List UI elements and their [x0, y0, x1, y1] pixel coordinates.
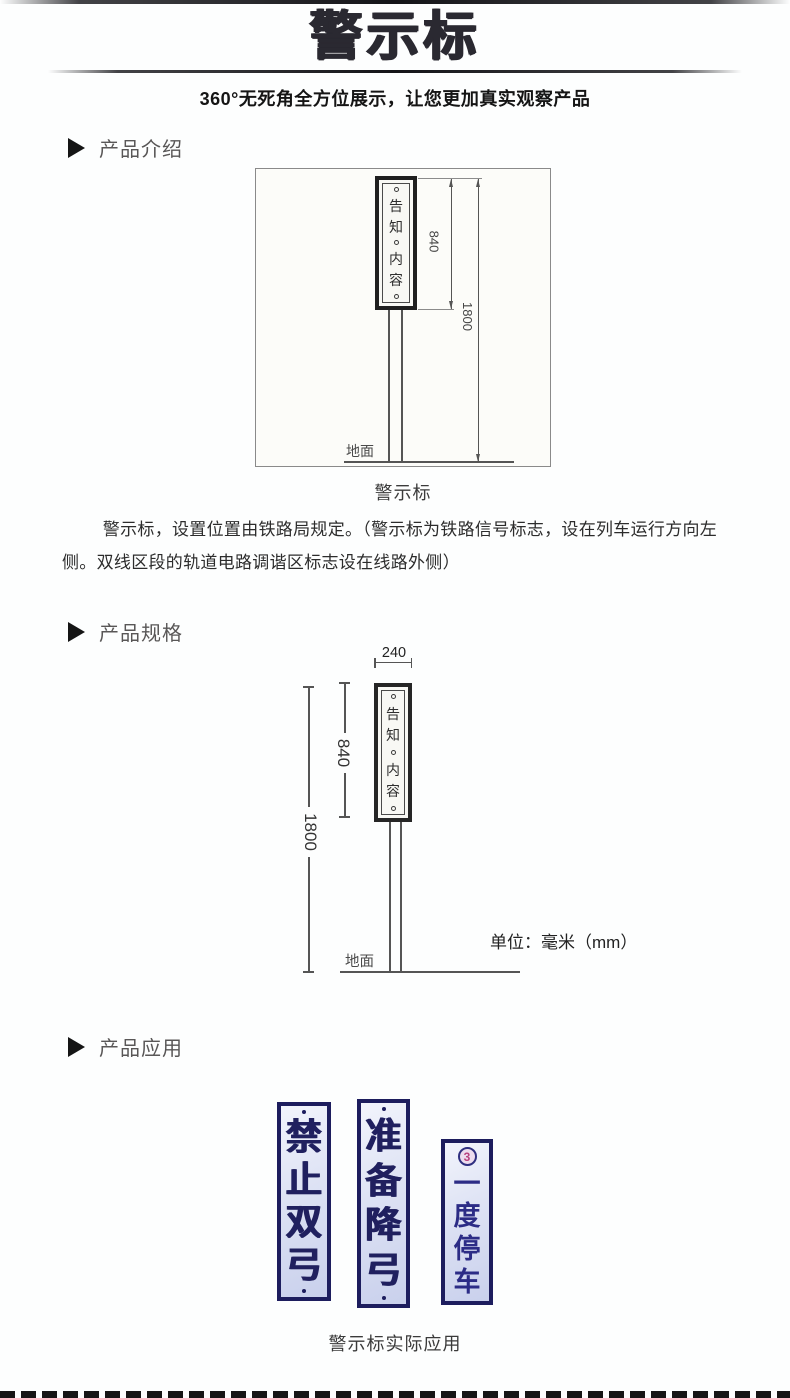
section-heading-label: 产品介绍 [99, 133, 183, 162]
section-heading-spec: 产品规格 [68, 617, 183, 646]
section-heading-application: 产品应用 [68, 1032, 183, 1061]
plate-char: 容 [386, 784, 400, 798]
drawing-sign-plate: 告 知 内 容 [374, 683, 412, 822]
plate-char: 知 [386, 728, 400, 742]
plate-char: 告 [389, 199, 403, 213]
plate-char: 告 [386, 707, 400, 721]
ground-label: 地面 [346, 441, 374, 461]
plate-char: 内 [386, 763, 400, 777]
sign-char: 度 [454, 1202, 481, 1231]
mounting-hole [391, 806, 396, 811]
plate-char: 知 [389, 220, 403, 234]
post-line [400, 822, 402, 972]
plate-char: 内 [389, 252, 403, 266]
sign-char: 准 [365, 1117, 401, 1156]
sign-char: 备 [365, 1162, 401, 1201]
page-title: 警示标 [0, 8, 790, 66]
dimension-label-840: 840 [426, 231, 441, 253]
mounting-hole [391, 750, 396, 755]
header-top-bar [0, 0, 790, 4]
sign-char: 禁 [286, 1118, 322, 1157]
drawing-sign-plate-inner: 告 知 内 容 [382, 183, 410, 303]
sign-char: 弓 [286, 1246, 322, 1285]
section-heading-label: 产品应用 [99, 1032, 183, 1061]
figure-spec-drawing: 240 告 知 内 容 地面 840 1800 单位：毫米（mm） [285, 645, 665, 990]
dimension-label-1800: 1800 [460, 302, 475, 331]
application-sign-zhunbei-jianggong: 准 备 降 弓 [357, 1099, 410, 1308]
mounting-hole [302, 1289, 306, 1293]
mounting-hole [391, 694, 396, 699]
mounting-hole [394, 240, 399, 245]
triangle-bullet-icon [68, 138, 85, 158]
sign-char: 弓 [365, 1251, 401, 1290]
drawing-sign-plate-inner: 告 知 内 容 [381, 690, 405, 815]
sign-char: 降 [365, 1206, 401, 1245]
sign-char: 双 [286, 1203, 322, 1242]
post-line [401, 310, 403, 462]
mounting-hole [382, 1296, 386, 1300]
ground-line [344, 461, 514, 463]
bottom-dashed-bar [0, 1391, 790, 1398]
mounting-hole [394, 294, 399, 299]
mounting-hole [302, 1110, 306, 1114]
page-subtitle: 360°无死角全方位展示，让您更加真实观察产品 [0, 85, 790, 111]
application-sign-yidu-tingche: 3 一 度 停 车 [441, 1139, 493, 1305]
dimension-line-1800 [478, 179, 479, 462]
mounting-hole [382, 1107, 386, 1111]
application-signs-row: 禁 止 双 弓 准 备 降 弓 3 一 度 停 车 [0, 1094, 790, 1322]
circled-3-badge: 3 [458, 1147, 477, 1166]
unit-note: 单位：毫米（mm） [490, 928, 637, 953]
section-heading-label: 产品规格 [99, 617, 183, 646]
figure1-caption: 警示标 [255, 479, 551, 505]
triangle-bullet-icon [68, 1037, 85, 1057]
dimension-line-840 [451, 179, 452, 309]
section-heading-intro: 产品介绍 [68, 133, 183, 162]
sign-char: 车 [454, 1268, 481, 1297]
post-line [389, 822, 391, 972]
ground-line [340, 971, 520, 973]
dimension-label-840: 840 [332, 733, 354, 773]
post-line [388, 310, 390, 462]
application-sign-jinzhi-shuanggong: 禁 止 双 弓 [277, 1102, 331, 1301]
triangle-bullet-icon [68, 622, 85, 642]
ground-label: 地面 [345, 950, 374, 971]
extension-line [418, 309, 454, 310]
sign-char: 止 [286, 1161, 322, 1200]
application-caption: 警示标实际应用 [0, 1330, 790, 1356]
intro-paragraph: 警示标，设置位置由铁路局规定。（警示标为铁路信号标志，设在列车运行方向左侧。双线… [62, 513, 732, 579]
dimension-label-240: 240 [373, 645, 415, 661]
sign-char: 停 [454, 1235, 481, 1264]
plate-char: 容 [389, 273, 403, 287]
dimension-label-1800: 1800 [299, 807, 321, 857]
page: 警示标 360°无死角全方位展示，让您更加真实观察产品 产品介绍 告 知 内 容… [0, 0, 790, 1398]
sign-char: 一 [454, 1170, 481, 1199]
title-divider [48, 70, 742, 73]
drawing-sign-plate: 告 知 内 容 [375, 176, 417, 310]
figure-installation-drawing: 告 知 内 容 地面 840 1800 [255, 168, 551, 467]
mounting-hole [394, 187, 399, 192]
dimension-line-240 [374, 662, 412, 663]
